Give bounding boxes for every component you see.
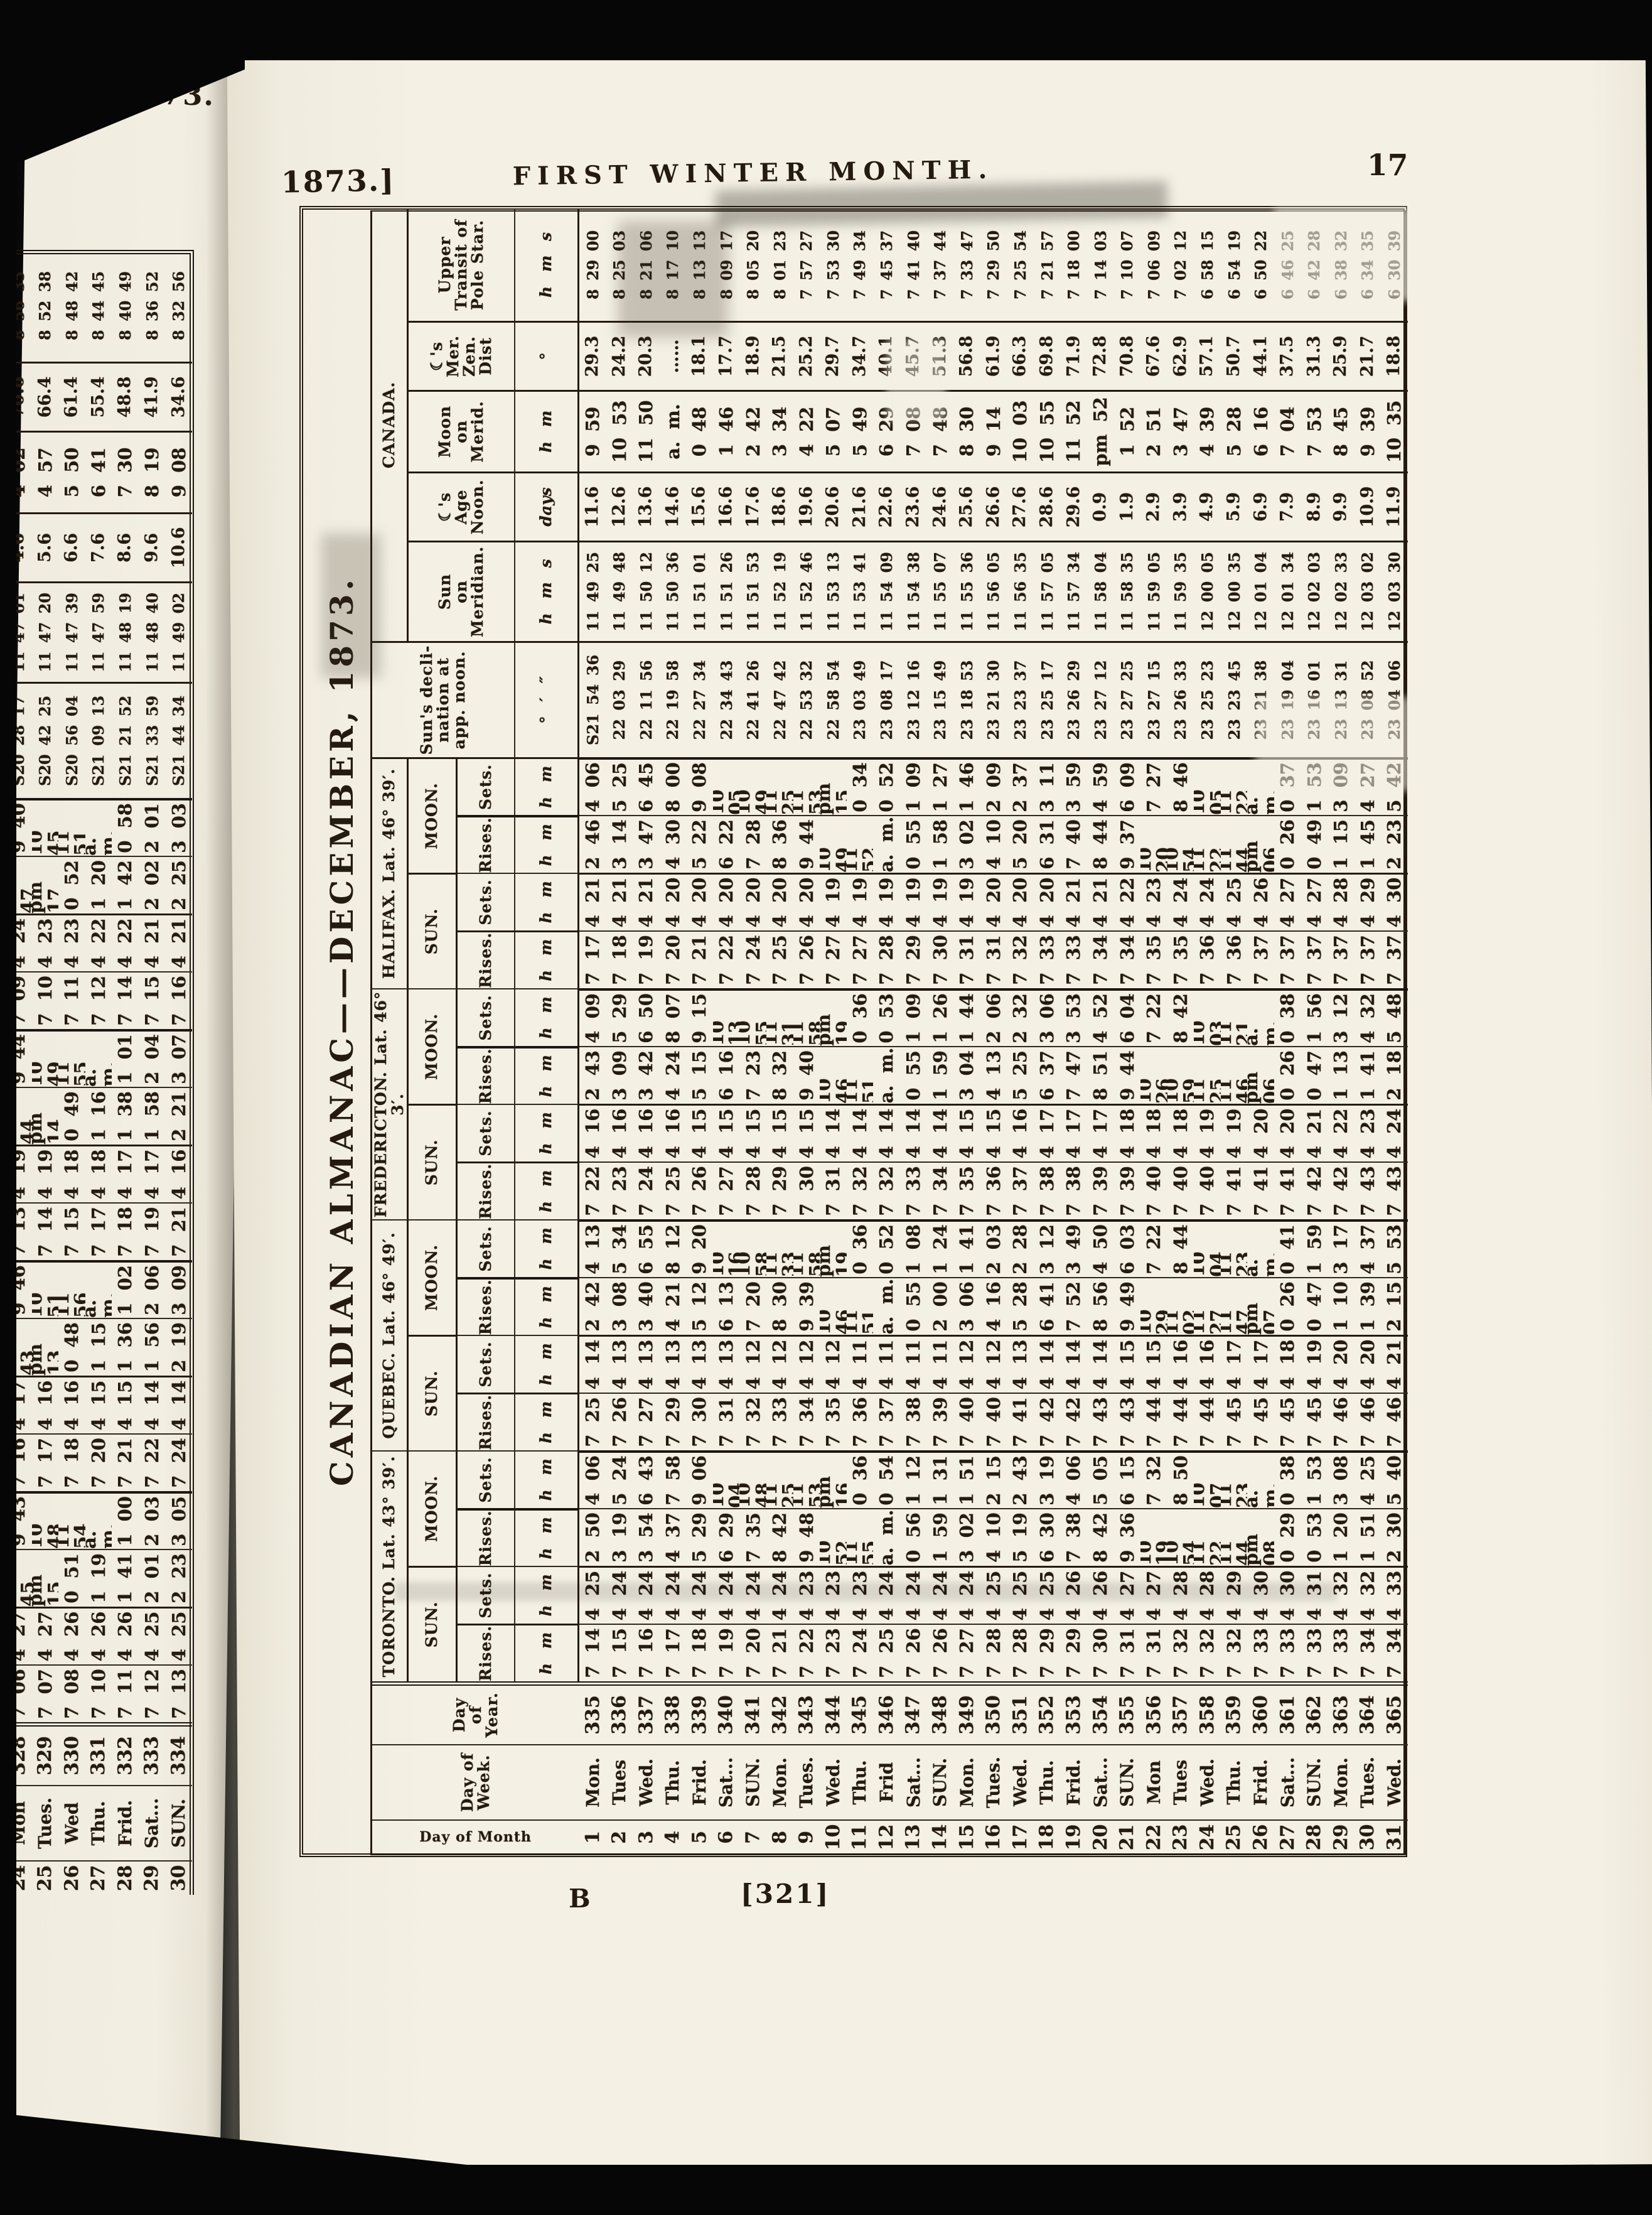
cell-halifax_sun_sets: 4 24 [1167, 873, 1194, 930]
cell-fredericton_moon_sets: 10 03 [1194, 988, 1221, 1046]
cell-halifax_moon_rises: 7 28 [739, 815, 766, 873]
cell-quebec_moon_sets: 4 37 [1354, 1219, 1381, 1277]
cell-day_of_year: 343 [793, 1681, 820, 1744]
cell-quebec_moon_rises: 2 42 [579, 1277, 606, 1335]
cell-toronto_moon_rises: 7 35 [739, 1508, 766, 1566]
cell-day_of_year: 345 [847, 1681, 874, 1744]
almanac-grid: Day of MonthDay of Week.Day of Year.TORO… [370, 210, 1406, 1855]
almanac-table: Day of MonthDay of Week.Day of Year.TORO… [370, 210, 1406, 1855]
cell-halifax_sun_rises: 7 34 [1114, 930, 1141, 988]
cell-fredericton_moon_rises: 6 16 [713, 1046, 740, 1104]
cell-day_of_week: Tues [606, 1744, 633, 1819]
cell-quebec_moon_sets: 1 02 [112, 1260, 139, 1318]
cell-moon_age: 3.9 [1167, 472, 1194, 541]
cell-day_of_week: Tues. [980, 1744, 1007, 1819]
cell-halifax_sun_rises: 7 28 [873, 930, 900, 988]
cell-upper_transit_pole_star: 7 33 47 [953, 209, 980, 321]
cell-toronto_sun_rises: 7 16 [633, 1624, 660, 1681]
cell-moon_age: 23.6 [900, 472, 927, 541]
cell-halifax_sun_sets: 4 23 [1140, 873, 1167, 930]
cell-moon_age: 28.6 [1034, 472, 1061, 541]
cell-quebec_sun_sets: 4 14 [1060, 1335, 1087, 1393]
header-units: h m s [515, 541, 579, 641]
cell-sun_declination: 23 27 25 [1114, 641, 1141, 757]
cell-fredericton_sun_rises: 7 23 [606, 1161, 633, 1219]
cell-upper_transit_pole_star: 7 14 03 [1087, 209, 1114, 321]
cell-moon_zenith_dist: 18.9 [739, 321, 766, 390]
cell-fredericton_sun_rises: 7 43 [1381, 1161, 1408, 1219]
cell-fredericton_moon_rises: 3 42 [633, 1046, 660, 1104]
cell-upper_transit_pole_star: 8 32 56 [165, 250, 192, 362]
running-head-year: 1873.] [281, 163, 395, 200]
cell-toronto_sun_sets: 4 26 [58, 1607, 85, 1664]
cell-quebec_moon_sets: 5 53 [1381, 1219, 1408, 1277]
cell-sun_on_meridian: 11 59 35 [1167, 541, 1194, 641]
cell-day_of_year: 360 [1247, 1681, 1274, 1744]
cell-fredericton_sun_sets: 4 18 [1140, 1104, 1167, 1161]
cell-moon_on_meridian: 7 30 [112, 431, 139, 512]
cell-halifax_moon_sets: 0 58 [112, 798, 139, 856]
cell-moon_age: 24.6 [927, 472, 954, 541]
cell-fredericton_moon_rises: 3 04 [953, 1046, 980, 1104]
cell-toronto_moon_rises: 9 48 [793, 1508, 820, 1566]
cell-toronto_sun_rises: 7 30 [1087, 1624, 1114, 1681]
cell-toronto_sun_sets: 4 24 [739, 1566, 766, 1624]
cell-fredericton_moon_sets: 11 21 [1221, 988, 1248, 1046]
cell-day_of_month: 28 [112, 1860, 139, 1895]
cell-moon_on_meridian: 4 57 [32, 431, 59, 512]
cell-halifax_sun_rises: 7 25 [766, 930, 793, 988]
cell-fredericton_sun_rises: 7 36 [980, 1161, 1007, 1219]
cell-fredericton_moon_sets: 0 53 [873, 988, 900, 1046]
cell-halifax_moon_rises: 4 10 [980, 815, 1007, 873]
cell-fredericton_sun_rises: 7 43 [1354, 1161, 1381, 1219]
cell-day_of_year: 364 [1354, 1681, 1381, 1744]
cell-fredericton_moon_sets: 11 31 [766, 988, 793, 1046]
cell-toronto_moon_sets: 11 53 [793, 1450, 820, 1508]
cell-fredericton_moon_sets: 8 42 [1167, 988, 1194, 1046]
cell-moon_age: 21.6 [847, 472, 874, 541]
cell-quebec_moon_sets: 11 23 [1221, 1219, 1248, 1277]
cell-quebec_moon_sets: 3 12 [1034, 1219, 1061, 1277]
film-edge [0, 0, 16, 2215]
cell-toronto_moon_sets: 3 19 [1034, 1450, 1061, 1508]
cell-day_of_year: 351 [1007, 1681, 1034, 1744]
cell-quebec_moon_sets: 6 03 [1114, 1219, 1141, 1277]
cell-halifax_sun_sets: 4 22 [1114, 873, 1141, 930]
cell-moon_on_meridian: 11 52 [1060, 390, 1087, 472]
cell-moon_on_meridian: 6 29 [873, 390, 900, 472]
header-units: h m [515, 1161, 579, 1219]
cell-fredericton_sun_sets: 4 20 [1274, 1104, 1301, 1161]
cell-halifax_sun_sets: 4 29 [1354, 873, 1381, 930]
cell-halifax_sun_rises: 7 35 [1167, 930, 1194, 988]
cell-fredericton_moon_rises: 0 55 [900, 1046, 927, 1104]
cell-toronto_moon_sets: 7 32 [1140, 1450, 1167, 1508]
cell-quebec_moon_rises: 11 02 [1167, 1277, 1194, 1335]
cell-halifax_sun_rises: 7 11 [58, 971, 85, 1029]
cell-toronto_sun_sets: 4 25 [980, 1566, 1007, 1624]
cell-fredericton_sun_sets: 4 14 [900, 1104, 927, 1161]
cell-moon_on_meridian: 8 45 [1327, 390, 1354, 472]
cell-day_of_month: 8 [766, 1819, 793, 1854]
cell-quebec_sun_rises: 7 45 [1301, 1393, 1328, 1450]
cell-fredericton_sun_sets: 4 21 [1301, 1104, 1328, 1161]
cell-halifax_sun_rises: 7 10 [32, 971, 59, 1029]
cell-halifax_sun_sets: 4 21 [165, 913, 192, 971]
cell-quebec_sun_sets: 4 20 [1327, 1335, 1354, 1393]
cell-halifax_moon_sets: 3 59 [1060, 757, 1087, 815]
cell-day_of_week: Frid. [1060, 1744, 1087, 1819]
cell-day_of_month: 15 [953, 1819, 980, 1854]
cell-fredericton_sun_sets: 4 15 [793, 1104, 820, 1161]
cell-halifax_sun_rises: 7 36 [1194, 930, 1221, 988]
cell-toronto_sun_sets: 4 30 [1247, 1566, 1274, 1624]
cell-moon_zenith_dist: 21.5 [766, 321, 793, 390]
header-sun: SUN. [409, 1335, 458, 1450]
cell-sun_declination: S21 44 34 [165, 682, 192, 798]
cell-fredericton_moon_rises: 11 25 [1194, 1046, 1221, 1104]
header-day-of-month-text: Day of Month [420, 1830, 532, 1845]
cell-quebec_sun_rises: 7 22 [139, 1433, 166, 1491]
cell-sun_declination: 23 23 45 [1221, 641, 1248, 757]
cell-upper_transit_pole_star: 6 46 25 [1274, 209, 1301, 321]
cell-moon_zenith_dist: 25.2 [793, 321, 820, 390]
cell-halifax_sun_sets: 4 20 [766, 873, 793, 930]
cell-day_of_year: 352 [1034, 1681, 1061, 1744]
cell-upper_transit_pole_star: 8 44 45 [85, 250, 112, 362]
cell-halifax_moon_sets: a. m. [85, 798, 112, 856]
cell-toronto_moon_sets: 1 31 [927, 1450, 954, 1508]
header-canada-column: Moon on Merid. [409, 390, 515, 472]
cell-fredericton_sun_sets: 4 17 [1034, 1104, 1061, 1161]
cell-moon_on_meridian: 6 41 [85, 431, 112, 512]
cell-day_of_week: Wed. [633, 1744, 660, 1819]
cell-toronto_sun_sets: 4 25 [1007, 1566, 1034, 1624]
cell-toronto_moon_sets: 4 25 [1354, 1450, 1381, 1508]
cell-day_of_month: 22 [1140, 1819, 1167, 1854]
cell-quebec_sun_sets: 4 14 [165, 1376, 192, 1433]
cell-fredericton_moon_rises: 0 49 [58, 1087, 85, 1145]
cell-day_of_year: 339 [686, 1681, 713, 1744]
cell-toronto_moon_rises: 5 19 [1007, 1508, 1034, 1566]
cell-halifax_sun_rises: 7 37 [1354, 930, 1381, 988]
cell-quebec_moon_rises: 9 49 [1114, 1277, 1141, 1335]
cell-moon_zenith_dist: 34.7 [847, 321, 874, 390]
cell-halifax_moon_sets: 0 52 [873, 757, 900, 815]
cell-moon_age: 8.6 [112, 512, 139, 581]
cell-quebec_sun_rises: 7 20 [85, 1433, 112, 1491]
cell-day_of_year: 356 [1140, 1681, 1167, 1744]
cell-day_of_year: 348 [927, 1681, 954, 1744]
cell-day_of_month: 18 [1034, 1819, 1061, 1854]
header-units: h m [515, 930, 579, 988]
header-canada-column: Sun on Meridian. [409, 541, 515, 641]
cell-toronto_moon_rises: 0 29 [1274, 1508, 1301, 1566]
cell-toronto_sun_rises: 7 25 [873, 1624, 900, 1681]
cell-halifax_moon_rises: 9 44 [793, 815, 820, 873]
cell-fredericton_sun_sets: 4 15 [953, 1104, 980, 1161]
cell-fredericton_moon_rises: 5 15 [686, 1046, 713, 1104]
cell-toronto_sun_sets: 4 23 [847, 1566, 874, 1624]
cell-sun_on_meridian: 11 51 53 [739, 541, 766, 641]
cell-upper_transit_pole_star: 7 45 37 [873, 209, 900, 321]
cell-quebec_moon_rises: 5 28 [1007, 1277, 1034, 1335]
cell-upper_transit_pole_star: 8 25 03 [606, 209, 633, 321]
cell-moon_on_meridian: 3 47 [1167, 390, 1194, 472]
cell-fredericton_moon_sets: 10 55 [739, 988, 766, 1046]
cell-moon_on_meridian: 5 50 [58, 431, 85, 512]
cell-sun_on_meridian: 11 55 36 [953, 541, 980, 641]
cell-fredericton_moon_rises: a. m. [873, 1046, 900, 1104]
cell-fredericton_sun_rises: 7 29 [766, 1161, 793, 1219]
cell-day_of_month: 6 [713, 1819, 740, 1854]
header-moon: MOON. [409, 988, 458, 1104]
cell-fredericton_sun_rises: 7 17 [85, 1202, 112, 1260]
cell-day_of_month: 30 [1354, 1819, 1381, 1854]
cell-halifax_moon_rises: 5 20 [1007, 815, 1034, 873]
cell-day_of_week: Wed [58, 1785, 85, 1860]
cell-toronto_sun_rises: 7 14 [579, 1624, 606, 1681]
cell-sun_declination: 23 26 29 [1060, 641, 1087, 757]
cell-quebec_moon_rises: 1 56 [139, 1318, 166, 1376]
cell-quebec_moon_rises: 3 40 [633, 1277, 660, 1335]
cell-quebec_sun_rises: 7 39 [927, 1393, 954, 1450]
cell-upper_transit_pole_star: 8 21 06 [633, 209, 660, 321]
cell-halifax_moon_sets: 10 05 [713, 757, 740, 815]
cell-fredericton_moon_rises: 1 59 [927, 1046, 954, 1104]
cell-moon_age: 25.6 [953, 472, 980, 541]
cell-halifax_sun_rises: 7 24 [739, 930, 766, 988]
cell-day_of_month: 13 [900, 1819, 927, 1854]
cell-fredericton_moon_sets: 2 06 [980, 988, 1007, 1046]
cell-quebec_moon_rises: 10 29 [1140, 1277, 1167, 1335]
cell-moon_age: 5.6 [32, 512, 59, 581]
page-reference: [321] [741, 1878, 830, 1909]
cell-halifax_moon_rises: 3 14 [606, 815, 633, 873]
cell-day_of_month: 12 [873, 1819, 900, 1854]
cell-halifax_moon_rises: 2 25 [165, 856, 192, 913]
cell-fredericton_moon_sets: 4 52 [1087, 988, 1114, 1046]
header-rises-sets: Sets. [458, 988, 515, 1046]
cell-toronto_moon_sets: 10 48 [739, 1450, 766, 1508]
cell-fredericton_moon_sets: 1 56 [1301, 988, 1328, 1046]
cell-toronto_sun_sets: 4 27 [32, 1607, 59, 1664]
cell-moon_zenith_dist: 70.8 [1114, 321, 1141, 390]
cell-toronto_sun_sets: 4 23 [820, 1566, 847, 1624]
cell-quebec_moon_sets: 10 58 [739, 1219, 766, 1277]
cell-toronto_sun_sets: 4 27 [1140, 1566, 1167, 1624]
cell-toronto_moon_sets: 2 03 [139, 1491, 166, 1549]
cell-moon_on_meridian: 9 08 [165, 431, 192, 512]
cell-toronto_sun_rises: 7 29 [1060, 1624, 1087, 1681]
cell-sun_on_meridian: 11 54 38 [900, 541, 927, 641]
cell-day_of_month: 11 [847, 1819, 874, 1854]
cell-day_of_month: 3 [633, 1819, 660, 1854]
cell-sun_declination: 23 19 04 [1274, 641, 1301, 757]
cell-fredericton_sun_rises: 7 40 [1167, 1161, 1194, 1219]
cell-toronto_moon_sets: 5 24 [606, 1450, 633, 1508]
cell-fredericton_sun_rises: 7 28 [739, 1161, 766, 1219]
cell-quebec_moon_rises: 0 48 [58, 1318, 85, 1376]
cell-moon_age: 17.6 [739, 472, 766, 541]
cell-halifax_moon_rises: 11 22 [1194, 815, 1221, 873]
cell-sun_on_meridian: 12 00 35 [1221, 541, 1248, 641]
cell-moon_zenith_dist: 37.5 [1274, 321, 1301, 390]
cell-halifax_moon_sets: 8 00 [660, 757, 687, 815]
cell-quebec_sun_rises: 7 31 [713, 1393, 740, 1450]
cell-toronto_sun_rises: 7 26 [927, 1624, 954, 1681]
cell-day_of_year: 340 [713, 1681, 740, 1744]
cell-day_of_month: 19 [1060, 1819, 1087, 1854]
cell-day_of_week: Wed. [1007, 1744, 1034, 1819]
cell-toronto_sun_rises: 7 33 [1327, 1624, 1354, 1681]
cell-halifax_sun_sets: 4 21 [606, 873, 633, 930]
cell-quebec_moon_rises: pm 07 [1247, 1277, 1274, 1335]
cell-fredericton_sun_rises: 7 14 [32, 1202, 59, 1260]
cell-halifax_sun_sets: 4 20 [1034, 873, 1061, 930]
cell-sun_declination: S21 54 36 [579, 641, 606, 757]
cell-toronto_moon_sets: 1 00 [112, 1491, 139, 1549]
cell-toronto_moon_rises: 1 19 [85, 1549, 112, 1607]
cell-fredericton_sun_rises: 7 35 [953, 1161, 980, 1219]
cell-moon_zenith_dist: 20.3 [633, 321, 660, 390]
cell-quebec_sun_sets: 4 14 [139, 1376, 166, 1433]
cell-fredericton_moon_rises: 2 43 [579, 1046, 606, 1104]
cell-quebec_sun_rises: 7 33 [766, 1393, 793, 1450]
cell-toronto_moon_sets: a. m. [1247, 1450, 1274, 1508]
cell-moon_on_meridian: 8 19 [139, 431, 166, 512]
cell-toronto_sun_sets: 4 29 [1221, 1566, 1248, 1624]
cell-fredericton_sun_sets: 4 15 [713, 1104, 740, 1161]
cell-sun_on_meridian: 12 01 04 [1247, 541, 1274, 641]
cell-halifax_moon_sets: 0 34 [847, 757, 874, 815]
header-moon: MOON. [409, 1450, 458, 1566]
cell-toronto_sun_sets: 4 32 [1354, 1566, 1381, 1624]
cell-quebec_moon_rises: 8 56 [1087, 1277, 1114, 1335]
cell-upper_transit_pole_star: 8 52 38 [32, 250, 59, 362]
header-rises-sets: Rises. [458, 1393, 515, 1450]
cell-fredericton_moon_rises: 4 24 [660, 1046, 687, 1104]
cell-halifax_sun_rises: 7 20 [660, 930, 687, 988]
cell-day_of_week: Mon [1140, 1744, 1167, 1819]
cell-quebec_sun_sets: 4 15 [85, 1376, 112, 1433]
cell-toronto_sun_sets: 4 24 [686, 1566, 713, 1624]
cell-upper_transit_pole_star: 7 29 50 [980, 209, 1007, 321]
cell-toronto_moon_rises: 11 22 [1194, 1508, 1221, 1566]
page-number: 17 [1367, 148, 1408, 183]
cell-quebec_sun_rises: 7 27 [633, 1393, 660, 1450]
cell-day_of_year: 336 [606, 1681, 633, 1744]
cell-moon_age: 6.6 [58, 512, 85, 581]
cell-sun_on_meridian: 11 49 02 [165, 581, 192, 682]
cell-day_of_year: 349 [953, 1681, 980, 1744]
cell-day_of_month: 28 [1301, 1819, 1328, 1854]
cell-halifax_sun_sets: 4 24 [1194, 873, 1221, 930]
cell-toronto_moon_sets: 11 23 [1221, 1450, 1248, 1508]
cell-halifax_sun_sets: 4 21 [139, 913, 166, 971]
cell-fredericton_sun_sets: 4 16 [660, 1104, 687, 1161]
cell-fredericton_sun_sets: 4 14 [873, 1104, 900, 1161]
cell-halifax_sun_sets: 4 21 [579, 873, 606, 930]
cell-quebec_sun_sets: 4 12 [980, 1335, 1007, 1393]
cell-quebec_moon_rises: pm 13 [32, 1318, 59, 1376]
cell-moon_on_meridian: 7 04 [1274, 390, 1301, 472]
cell-moon_on_meridian: 11 50 [633, 390, 660, 472]
cell-moon_age: 27.6 [1007, 472, 1034, 541]
cell-quebec_moon_sets: 11 58 [793, 1219, 820, 1277]
cell-sun_declination: 22 19 58 [660, 641, 687, 757]
cell-halifax_moon_sets: 6 45 [633, 757, 660, 815]
header-rises-sets: Sets. [458, 873, 515, 930]
header-rises-sets: Rises. [458, 815, 515, 873]
cell-upper_transit_pole_star: 6 42 28 [1301, 209, 1328, 321]
cell-moon_zenith_dist: 41.9 [139, 362, 166, 431]
cell-sun_on_meridian: 12 02 33 [1327, 541, 1354, 641]
cell-halifax_moon_rises: 8 36 [766, 815, 793, 873]
cell-quebec_sun_sets: 4 17 [1221, 1335, 1248, 1393]
cell-fredericton_sun_sets: 4 16 [165, 1145, 192, 1202]
cell-toronto_moon_rises: 1 20 [1327, 1508, 1354, 1566]
cell-halifax_sun_sets: 4 19 [900, 873, 927, 930]
cell-fredericton_moon_sets: 3 53 [1060, 988, 1087, 1046]
cell-fredericton_moon_sets: 2 04 [139, 1029, 166, 1087]
cell-day_of_year: 353 [1060, 1681, 1087, 1744]
cell-sun_on_meridian: 11 59 05 [1140, 541, 1167, 641]
header-canada-column: ☾'s Mer. Zen. Dist [409, 321, 515, 390]
cell-sun_declination: 23 23 37 [1007, 641, 1034, 757]
cell-fredericton_sun_rises: 7 19 [139, 1202, 166, 1260]
cell-halifax_sun_rises: 7 32 [1007, 930, 1034, 988]
cell-halifax_moon_rises: 6 22 [713, 815, 740, 873]
cell-sun_declination: 23 08 52 [1354, 641, 1381, 757]
header-city: HALIFAX. Lat. 46° 39′. [372, 757, 409, 988]
cell-fredericton_sun_sets: 4 16 [606, 1104, 633, 1161]
cell-sun_on_meridian: 12 02 03 [1301, 541, 1328, 641]
cell-moon_age: 0.9 [1087, 472, 1114, 541]
cell-quebec_sun_rises: 7 45 [1274, 1393, 1301, 1450]
cell-moon_on_meridian: 9 39 [1354, 390, 1381, 472]
cell-quebec_moon_rises: 7 20 [739, 1277, 766, 1335]
cell-fredericton_moon_rises: 1 16 [85, 1087, 112, 1145]
cell-toronto_moon_sets: 7 58 [660, 1450, 687, 1508]
cell-toronto_sun_sets: 4 25 [139, 1607, 166, 1664]
cell-fredericton_moon_rises: pm 06 [1247, 1046, 1274, 1104]
cell-toronto_sun_rises: 7 22 [793, 1624, 820, 1681]
cell-quebec_sun_rises: 7 46 [1354, 1393, 1381, 1450]
cell-day_of_week: SUN. [1114, 1744, 1141, 1819]
cell-day_of_month: 27 [1274, 1819, 1301, 1854]
cell-quebec_moon_sets: 3 49 [1060, 1219, 1087, 1277]
cell-quebec_moon_rises: 0 47 [1301, 1277, 1328, 1335]
cell-day_of_year: 333 [139, 1722, 166, 1785]
cell-quebec_sun_sets: 4 13 [660, 1335, 687, 1393]
cell-halifax_moon_sets: 4 27 [1354, 757, 1381, 815]
cell-moon_zenith_dist: 66.3 [1007, 321, 1034, 390]
signature-letter: B [569, 1884, 591, 1914]
cell-toronto_sun_sets: 4 26 [1087, 1566, 1114, 1624]
cell-day_of_week: Thu. [847, 1744, 874, 1819]
cell-quebec_moon_rises: 1 36 [112, 1318, 139, 1376]
cell-halifax_moon_sets: 3 03 [165, 798, 192, 856]
cell-moon_zenith_dist: 24.2 [606, 321, 633, 390]
cell-quebec_sun_sets: 4 12 [739, 1335, 766, 1393]
cell-quebec_sun_sets: 4 13 [713, 1335, 740, 1393]
cell-quebec_sun_rises: 7 44 [1194, 1393, 1221, 1450]
cell-halifax_moon_rises: 2 23 [1381, 815, 1408, 873]
cell-quebec_sun_rises: 7 40 [980, 1393, 1007, 1450]
cell-fredericton_moon_sets: 3 12 [1327, 988, 1354, 1046]
